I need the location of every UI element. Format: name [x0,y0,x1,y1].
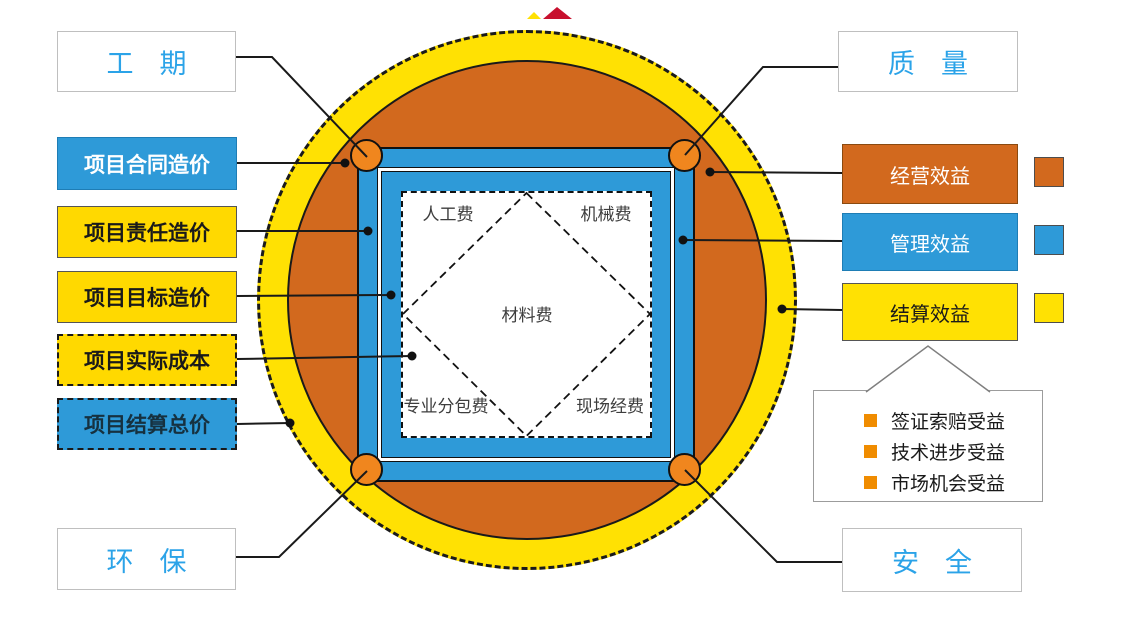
decorative-red-triangle-icon [543,7,572,19]
right-box-operating-benefit: 经营效益 [842,144,1018,204]
cost-label-materials: 材料费 [492,301,562,326]
legend-swatch-blue [1034,225,1064,255]
connector-settlement-total [237,423,290,424]
corner-node-top-right [668,139,701,172]
safety-label: 安全 [866,541,998,580]
cost-label-machinery: 机械费 [571,200,641,225]
callout-item: 市场机会受益 [864,467,1042,498]
left-box-contract-price: 项目合同造价 [57,137,237,190]
square-bullet-icon [864,414,877,427]
square-bullet-icon [864,476,877,489]
legend-swatch-yellow [1034,293,1064,323]
up-arrow-icon [866,346,990,392]
settlement-benefit-callout: 签证索赔受益 技术进步受益 市场机会受益 [813,390,1043,502]
left-box-actual-cost: 项目实际成本 [57,334,237,386]
right-box-management-benefit: 管理效益 [842,213,1018,271]
legend-swatch-orange [1034,157,1064,187]
corner-node-bottom-right [668,453,701,486]
callout-item: 签证索赔受益 [864,405,1042,436]
cost-label-labor: 人工费 [413,200,483,225]
label-box-environment: 环保 [57,528,236,590]
callout-item: 技术进步受益 [864,436,1042,467]
cost-label-subcontract: 专业分包费 [398,392,494,417]
quality-label: 质量 [862,42,994,81]
right-box-settlement-benefit: 结算效益 [842,283,1018,341]
decorative-yellow-triangle-icon [527,12,541,19]
left-box-settlement-total: 项目结算总价 [57,398,237,450]
corner-node-top-left [350,139,383,172]
label-box-safety: 安全 [842,528,1022,592]
diagram-canvas: 人工费 机械费 材料费 专业分包费 现场经费 工期 质量 环保 安全 项目合同造… [0,0,1121,625]
left-box-target-price: 项目目标造价 [57,271,237,323]
square-bullet-icon [864,445,877,458]
label-box-quality: 质量 [838,31,1018,92]
environment-label: 环保 [81,540,213,579]
callout-item-label: 技术进步受益 [891,438,1005,465]
callout-item-label: 市场机会受益 [891,469,1005,496]
left-box-responsibility-price: 项目责任造价 [57,206,237,258]
label-box-duration: 工期 [57,31,236,92]
callout-item-label: 签证索赔受益 [891,407,1005,434]
cost-label-site-expense: 现场经费 [572,392,648,417]
duration-label: 工期 [81,42,213,81]
corner-node-bottom-left [350,453,383,486]
